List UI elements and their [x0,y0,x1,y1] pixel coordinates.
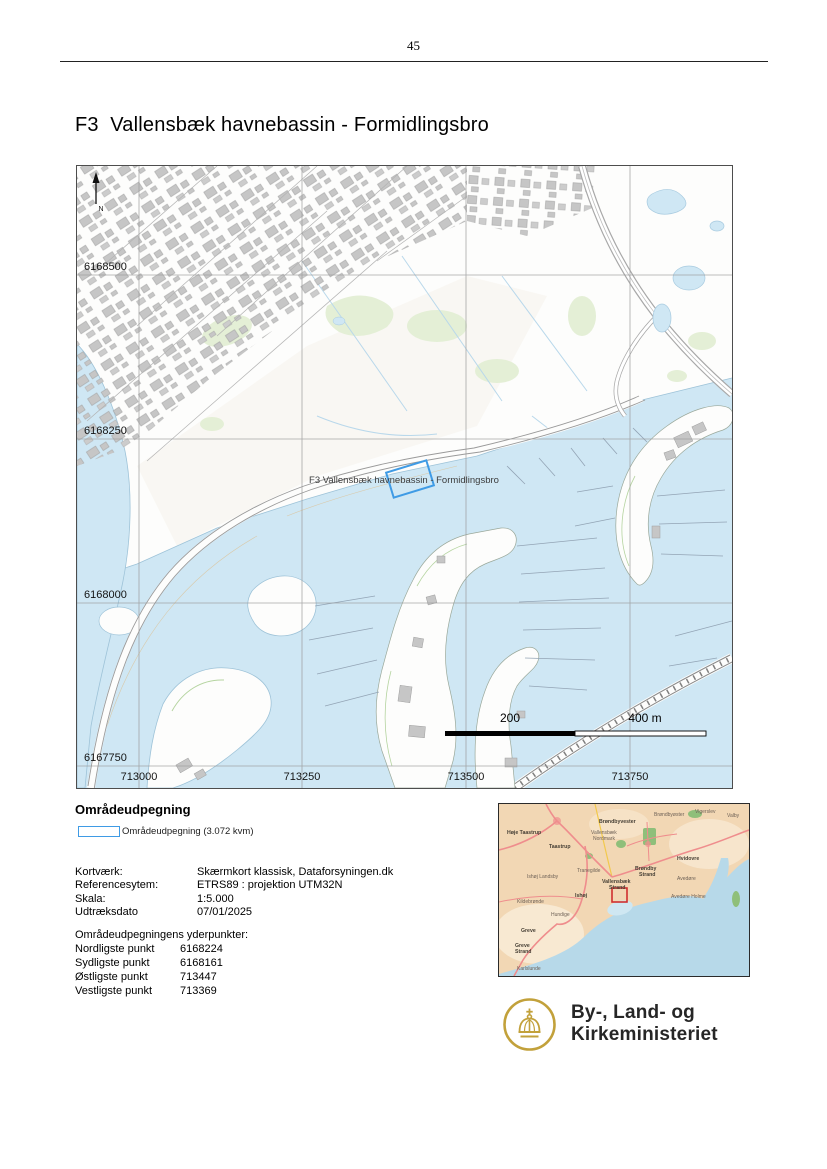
extreme-value: 6168224 [180,942,248,956]
extreme-points: Områdeudpegningens yderpunkter: Nordligs… [75,928,248,998]
extreme-label: Østligste punkt [75,970,180,984]
overview-place-label: Valby [727,813,740,819]
overview-place-label: Kildebrønde [517,899,544,905]
y-tick: 6168250 [84,425,127,437]
legend-heading: Områdeudpegning [75,802,191,817]
extreme-label: Nordligste punkt [75,942,180,956]
overview-place-label: Ishøj [575,893,588,899]
metadata-row: Kortværk: Skærmkort klassisk, Dataforsyn… [75,866,393,879]
main-map-canvas: F3 Vallensbæk havnebassin - Formidlingsb… [77,166,732,788]
overview-place-label: Brøndbyøster [654,812,685,818]
extreme-value: 713447 [180,970,248,984]
extreme-value: 6168161 [180,956,248,970]
metadata-value: ETRS89 : projektion UTM32N [197,879,393,892]
overview-place-label: Hvidovre [677,856,699,862]
y-tick: 6167750 [84,752,127,764]
metadata-label: Kortværk: [75,866,197,879]
overview-map-canvas: Høje TaastrupTaastrupVallensbækNordmarkB… [499,804,749,976]
x-tick: 713250 [284,771,321,783]
metadata-row: Skala: 1:5.000 [75,893,393,906]
header-rule [60,61,768,62]
extreme-row: Nordligste punkt 6168224 [75,942,248,956]
document-page: 45 F3 Vallensbæk havnebassin - Formidlin… [0,0,827,1169]
overview-place-label: Greve [521,928,536,934]
north-label: N [99,206,104,213]
metadata-row: Udtræksdato 07/01/2025 [75,906,393,919]
main-map: F3 Vallensbæk havnebassin - Formidlingsb… [76,165,733,789]
overview-place-label: Hundige [551,912,570,918]
x-tick: 713500 [448,771,485,783]
map-metadata: Kortværk: Skærmkort klassisk, Dataforsyn… [75,866,393,920]
metadata-label: Skala: [75,893,197,906]
page-title: F3 Vallensbæk havnebassin - Formidlingsb… [75,114,489,137]
overview-place-label: Strand [639,872,655,878]
x-tick: 713000 [121,771,158,783]
metadata-label: Udtræksdato [75,906,197,919]
extreme-row: Østligste punkt 713447 [75,970,248,984]
overview-place-label: Vigerslev [695,809,716,815]
overview-place-label: Strand [515,949,531,955]
extreme-label: Sydligste punkt [75,956,180,970]
overview-place-label: Tranegilde [577,868,601,874]
metadata-label: Referencesytem: [75,879,197,892]
overview-place-label: Taastrup [549,844,571,850]
x-tick: 713750 [612,771,649,783]
extreme-row: Vestligste punkt 713369 [75,984,248,998]
page-number: 45 [0,38,827,54]
metadata-row: Referencesytem: ETRS89 : projektion UTM3… [75,879,393,892]
metadata-value: 07/01/2025 [197,906,393,919]
overview-place-label: Karlslunde [517,966,541,972]
overview-place-label: Brøndbyvester [599,819,636,825]
ministry-logo-crown-icon [502,997,557,1052]
scale-mid-label: 200 [500,711,520,725]
y-tick: 6168500 [84,261,127,273]
overview-place-label: Nordmark [593,836,615,842]
scale-end-label: 400 m [628,711,661,725]
ministry-name-line1: By-, Land- og [571,1002,718,1024]
y-tick: 6168000 [84,589,127,601]
overview-place-label: Strand [609,885,625,891]
legend-item-label: Områdeudpegning (3.072 kvm) [122,826,254,837]
overview-place-label: Ishøj Landsby [527,874,559,880]
extreme-row: Sydligste punkt 6168161 [75,956,248,970]
legend-swatch [78,826,120,837]
extremes-heading: Områdeudpegningens yderpunkter: [75,928,248,942]
extreme-label: Vestligste punkt [75,984,180,998]
area-designation-label: F3 Vallensbæk havnebassin - Formidlingsb… [309,475,499,486]
overview-map: Høje TaastrupTaastrupVallensbækNordmarkB… [498,803,750,977]
ministry-name-line2: Kirkeministeriet [571,1024,718,1046]
overview-place-label: Høje Taastrup [507,830,541,836]
overview-place-label: Avedøre [677,876,696,882]
overview-place-label: Avedøre Holme [671,894,706,900]
extreme-value: 713369 [180,984,248,998]
ministry-logo-text: By-, Land- og Kirkeministeriet [571,1002,718,1046]
metadata-value: 1:5.000 [197,893,393,906]
metadata-value: Skærmkort klassisk, Dataforsyningen.dk [197,866,393,879]
